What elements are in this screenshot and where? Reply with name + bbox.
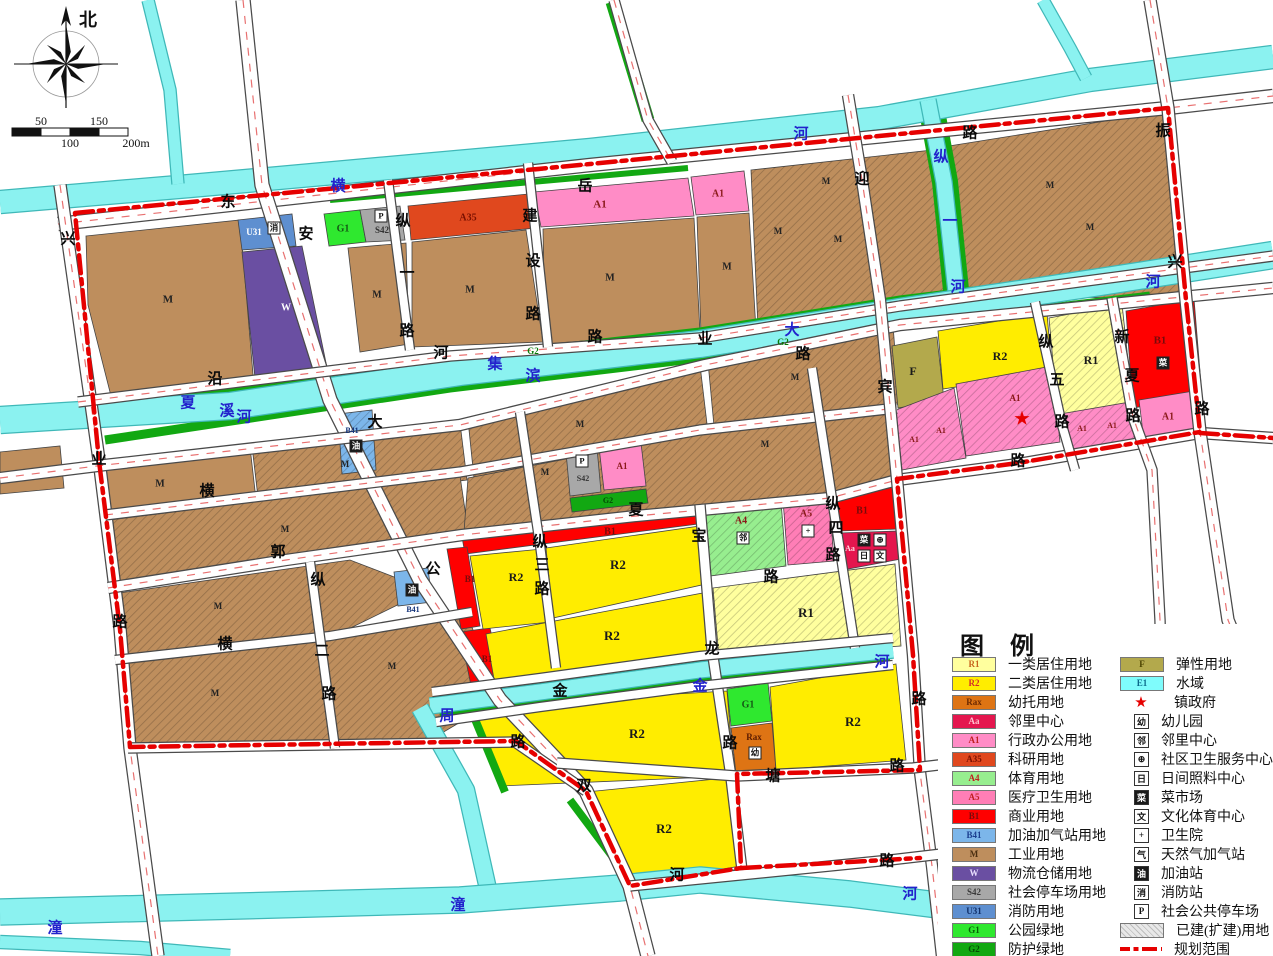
road-name-char: 路 (587, 327, 603, 345)
zone-label-A1: A1 (1107, 421, 1117, 430)
legend-swatch-W: W (952, 866, 996, 881)
legend-label: 弹性用地 (1176, 654, 1232, 674)
zone-label-G1: G1 (337, 223, 350, 234)
zone-label-Aa: Aa (845, 544, 855, 553)
legend-item-A4: A4体育用地 (952, 769, 1064, 787)
legend-item-Aa: Aa邻里中心 (952, 712, 1064, 730)
legend-label: 消防用地 (1008, 901, 1064, 921)
zone-label-M: M (605, 272, 615, 283)
zone-label-M: M (722, 261, 732, 272)
road-name-char: 路 (525, 304, 541, 322)
zone-label-A1: A1 (712, 188, 724, 199)
road-name-char: 岳 (577, 176, 592, 194)
river-name-char: 潼 (450, 895, 465, 913)
road-name-char: 路 (1010, 451, 1026, 469)
road-name-char: 纵 (825, 494, 840, 512)
zone-label-R2: R2 (629, 726, 645, 741)
facility-icon-菜: 菜 (1158, 357, 1168, 367)
zone-label-M: M (281, 524, 290, 534)
zone-label-A1: A1 (909, 435, 919, 444)
legend-swatch-Rax: Rax (952, 695, 996, 710)
road-name-char: 路 (1194, 399, 1210, 417)
road-name-char: 宝 (691, 526, 706, 544)
road-name-char: 迎 (854, 169, 869, 187)
legend-icon-社会公共停车场: P (1134, 904, 1149, 919)
road-name-char: 安 (298, 224, 313, 242)
zone-label-M: M (822, 176, 831, 186)
river-name-char: 集 (486, 354, 503, 372)
zone-label-M: M (341, 459, 350, 469)
legend-label: 消防站 (1161, 882, 1203, 902)
legend-item-规划范围: 规划范围 (1120, 940, 1230, 956)
facility-icon-菜: 菜 (859, 534, 869, 544)
river-name-char: 金 (691, 676, 708, 694)
legend-label: 菜市场 (1161, 787, 1203, 807)
legend-item-加油站: 油加油站 (1120, 864, 1203, 882)
road-name-char: 公 (425, 560, 440, 577)
road-name-char: 河 (433, 343, 448, 361)
river-name-char: 滨 (525, 366, 540, 384)
legend-swatch-A1: A1 (952, 733, 996, 748)
planning-boundary-dash-swatch (1120, 947, 1162, 951)
zone-label-M: M (761, 439, 770, 449)
road-name-char: 路 (763, 567, 779, 585)
river-name-char: 一 (942, 213, 957, 229)
zone-label-R2: R2 (845, 714, 861, 729)
legend-item-G2: G2防护绿地 (952, 940, 1064, 956)
legend-item-日间照料中心: 日日间照料中心 (1120, 769, 1245, 787)
zone-label-M: M (774, 226, 783, 236)
legend-item-卫生院: +卫生院 (1120, 826, 1203, 844)
facility-icon-P: P (579, 455, 584, 465)
road-name-char: 横 (199, 481, 215, 499)
zone-label-A1: A1 (1077, 424, 1087, 433)
m-block (412, 230, 543, 347)
zone-label-M: M (214, 601, 223, 611)
river-name-char: 大 (784, 320, 799, 338)
road-name-char: 业 (697, 330, 712, 347)
town-government-star-icon: ★ (1014, 409, 1030, 428)
road-name-char: 路 (911, 689, 927, 707)
legend-item-W: W物流仓储用地 (952, 864, 1092, 882)
legend-icon-社区卫生服务中心: ⊕ (1134, 752, 1149, 767)
legend-swatch-M: M (952, 847, 996, 862)
road-name-char: 建 (522, 206, 538, 224)
planning-map-stage: MU31WG1S42MMA35A1MA1MMMMMMMMMMB41MMMS42A… (0, 0, 1273, 956)
road-name-char: 路 (399, 321, 415, 339)
zone-label-M: M (1086, 222, 1095, 232)
legend-item-已建(扩建)用地: 已建(扩建)用地 (1120, 921, 1269, 939)
legend-label: 天然气加气站 (1161, 844, 1245, 864)
road-name-char: 路 (1054, 412, 1070, 430)
legend-item-E1: E1水域 (1120, 674, 1204, 692)
scale-label-50: 50 (35, 114, 47, 128)
legend-item-社区卫生服务中心: ⊕社区卫生服务中心 (1120, 750, 1273, 768)
road-name-char: 路 (722, 733, 738, 751)
zone-label-S42: S42 (375, 225, 390, 235)
road-name-char: 路 (825, 545, 841, 563)
legend-label: 社区卫生服务中心 (1161, 749, 1273, 769)
zone-label-B1: B1 (856, 505, 868, 516)
legend-icon-文化体育中心: 文 (1134, 809, 1149, 824)
legend-item-Rax: Rax幼托用地 (952, 693, 1064, 711)
road-name-char: 夏 (627, 501, 644, 518)
legend-item-S42: S42社会停车场用地 (952, 883, 1106, 901)
legend-item-A5: A5医疗卫生用地 (952, 788, 1092, 806)
zone-label-M: M (155, 478, 165, 489)
legend-label: 科研用地 (1008, 749, 1064, 769)
legend-item-消防站: 消消防站 (1120, 883, 1203, 901)
zone-label-U31: U31 (246, 227, 262, 237)
legend-item-R2: R2二类居住用地 (952, 674, 1092, 692)
scale-label-100: 100 (61, 136, 79, 150)
legend-label: 文化体育中心 (1161, 806, 1245, 826)
road-name-char: 设 (525, 252, 540, 269)
zone-label-G2: G2 (603, 496, 613, 505)
m-block (86, 220, 254, 400)
road-name-char: 龙 (703, 639, 719, 657)
legend-label: 镇政府 (1174, 692, 1216, 712)
zone-label-B1: B1 (482, 654, 493, 664)
legend-label: 日间照料中心 (1161, 768, 1245, 788)
legend-label: 加油站 (1161, 863, 1203, 883)
zone-label-M: M (541, 467, 550, 477)
zone-label-B41: B41 (345, 426, 358, 435)
legend-item-A35: A35科研用地 (952, 750, 1064, 768)
river-name-char: 横 (330, 176, 346, 194)
legend-item-G1: G1公园绿地 (952, 921, 1064, 939)
legend-item-R1: R1一类居住用地 (952, 655, 1092, 673)
legend-item-天然气加气站: 气天然气加气站 (1120, 845, 1245, 863)
zone-label-A1: A1 (617, 461, 628, 471)
legend-label: 已建(扩建)用地 (1176, 920, 1269, 940)
zone-label-R2: R2 (509, 570, 524, 584)
facility-icon-油: 油 (408, 584, 417, 594)
road-name-char: 四 (828, 520, 843, 536)
legend-label: 规划范围 (1174, 939, 1230, 956)
legend-label: 物流仓储用地 (1008, 863, 1092, 883)
legend-item-F: F弹性用地 (1120, 655, 1232, 673)
legend-label: 幼托用地 (1008, 692, 1064, 712)
legend-label: 一类居住用地 (1008, 654, 1092, 674)
facility-icon-+: + (806, 525, 811, 535)
legend-icon-消防站: 消 (1134, 885, 1149, 900)
legend-label: 水域 (1176, 673, 1204, 693)
zone-label-R2: R2 (993, 349, 1008, 363)
zone-label-M: M (211, 688, 220, 698)
river-name-char: 纵 (933, 147, 948, 165)
legend-label: 邻里中心 (1008, 711, 1064, 731)
road-name-char: 路 (795, 344, 811, 362)
legend-label: 体育用地 (1008, 768, 1064, 788)
road-name-char: 夏 (1123, 367, 1140, 384)
road-name-char: 沿 (207, 370, 222, 387)
legend-label: 公园绿地 (1008, 920, 1064, 940)
legend-item-邻里中心: 邻邻里中心 (1120, 731, 1217, 749)
road-name-char: 路 (534, 579, 550, 597)
facility-icon-邻: 邻 (739, 532, 748, 542)
road-name-char: 大 (367, 412, 382, 430)
zone-label-B1: B1 (465, 574, 476, 584)
zone-label-M: M (465, 284, 475, 295)
road-name-char: 三 (534, 557, 549, 573)
road-name-char: 五 (1049, 372, 1064, 388)
legend-swatch-A5: A5 (952, 790, 996, 805)
river-name-char: 河 (793, 124, 808, 142)
road-name-char: 二 (314, 643, 329, 659)
legend-item-社会公共停车场: P社会公共停车场 (1120, 902, 1259, 920)
road-name-char: 金 (551, 681, 568, 699)
legend-panel: 图 例 R1一类居住用地R2二类居住用地Rax幼托用地Aa邻里中心A1行政办公用… (938, 624, 1273, 956)
legend-label: 医疗卫生用地 (1008, 787, 1092, 807)
road-name-char: 纵 (310, 570, 325, 588)
m-block (543, 218, 700, 344)
legend-label: 社会停车场用地 (1008, 882, 1106, 902)
legend-item-B41: B41加油加气站用地 (952, 826, 1106, 844)
road-name-char: 路 (321, 684, 337, 702)
legend-item-U31: U31消防用地 (952, 902, 1064, 920)
legend-label: 工业用地 (1008, 844, 1064, 864)
zone-label-S42: S42 (577, 474, 589, 483)
zone-label-Rax: Rax (746, 732, 762, 742)
zone-label-A4: A4 (735, 515, 747, 526)
legend-icon-卫生院: + (1134, 828, 1149, 843)
zone-label-F: F (909, 364, 916, 378)
river-name-char: 河 (902, 884, 917, 902)
legend-label: 商业用地 (1008, 806, 1064, 826)
legend-swatch-R1: R1 (952, 657, 996, 672)
scale-label-200m: 200m (122, 136, 150, 150)
legend-swatch-S42: S42 (952, 885, 996, 900)
river-name-char: 河 (874, 652, 889, 670)
zone-label-A1: A1 (593, 199, 606, 211)
road-name-char: 双 (576, 777, 591, 794)
legend-swatch-F: F (1120, 657, 1164, 672)
river-name-char: 周 (439, 707, 454, 724)
zone-label-R2: R2 (604, 628, 620, 643)
legend-label: 加油加气站用地 (1008, 825, 1106, 845)
legend-label: 幼儿园 (1161, 711, 1203, 731)
river-name-char: 夏 (179, 394, 196, 411)
river-name-char: 河 (950, 277, 965, 295)
legend-icon-日间照料中心: 日 (1134, 771, 1149, 786)
zone-label-A5: A5 (800, 508, 812, 519)
green-name-char: G2 (527, 346, 539, 356)
zone-label-B1: B1 (1154, 335, 1167, 347)
road-name-char: 新 (1114, 327, 1129, 345)
zone-label-M: M (163, 294, 174, 306)
river-name-char: 河 (1145, 272, 1160, 290)
zone-label-M: M (372, 289, 382, 300)
facility-icon-日: 日 (860, 550, 869, 560)
zone-label-A1: A1 (1162, 411, 1174, 422)
zone-label-B41: B41 (406, 605, 419, 614)
legend-swatch-G1: G1 (952, 923, 996, 938)
facility-icon-文: 文 (876, 550, 885, 560)
road-name-char: 振 (1155, 121, 1170, 139)
road-name-char: 纵 (1038, 332, 1053, 350)
legend-item-文化体育中心: 文文化体育中心 (1120, 807, 1245, 825)
legend-item-镇政府: ★镇政府 (1120, 693, 1216, 711)
road-name-char: 纵 (395, 211, 410, 229)
legend-item-幼儿园: 幼幼儿园 (1120, 712, 1203, 730)
facility-icon-⊕: ⊕ (876, 534, 883, 544)
zone-label-W: W (281, 302, 291, 313)
legend-swatch-Aa: Aa (952, 714, 996, 729)
zone-label-M: M (1046, 180, 1055, 190)
zone-label-G1: G1 (742, 699, 755, 710)
road-name-char: 纵 (532, 532, 547, 550)
road-name-char: 东 (220, 192, 235, 210)
facility-icon-消: 消 (270, 222, 279, 232)
legend-swatch-G2: G2 (952, 942, 996, 956)
legend-icon-邻里中心: 邻 (1134, 733, 1149, 748)
zone-label-A35: A35 (459, 212, 476, 223)
legend-icon-菜市场: 菜 (1134, 790, 1149, 805)
legend-item-B1: B1商业用地 (952, 807, 1064, 825)
road-name-char: 路 (962, 123, 978, 141)
river-name-char: 溪 (219, 401, 235, 419)
facility-icon-P: P (378, 210, 383, 220)
river-name-char: 潼 (47, 918, 62, 936)
zone-label-M: M (388, 661, 397, 671)
zone-label-A1: A1 (1010, 393, 1021, 403)
legend-item-M: M工业用地 (952, 845, 1064, 863)
road-name-char: 路 (879, 851, 895, 869)
zone-label-A1: A1 (936, 426, 946, 435)
facility-icon-幼: 幼 (751, 747, 760, 757)
north-label: 北 (79, 10, 97, 30)
legend-item-A1: A1行政办公用地 (952, 731, 1092, 749)
legend-item-菜市场: 菜菜市场 (1120, 788, 1203, 806)
scale-label-150: 150 (90, 114, 108, 128)
zone-label-M: M (834, 234, 843, 244)
road-name-char: 路 (1125, 406, 1141, 424)
zone-label-R2: R2 (610, 557, 626, 572)
zone-label-R1: R1 (1084, 353, 1099, 367)
legend-swatch-B1: B1 (952, 809, 996, 824)
legend-label: 行政办公用地 (1008, 730, 1092, 750)
legend-swatch-R2: R2 (952, 676, 996, 691)
legend-swatch-A35: A35 (952, 752, 996, 767)
legend-label: 邻里中心 (1161, 730, 1217, 750)
road-name-char: 兴 (60, 230, 75, 247)
legend-icon-加油站: 油 (1134, 866, 1149, 881)
road-name-char: 路 (889, 756, 905, 774)
legend-icon-天然气加气站: 气 (1134, 847, 1149, 862)
legend-swatch-U31: U31 (952, 904, 996, 919)
zone-label-M: M (791, 372, 800, 382)
road-name-char: 路 (510, 732, 526, 750)
legend-label: 防护绿地 (1008, 939, 1064, 956)
road-name-char: 横 (217, 634, 233, 652)
road-name-char: 业 (91, 450, 106, 467)
legend-icon-幼儿园: 幼 (1134, 714, 1149, 729)
facility-icon-油: 油 (352, 440, 361, 450)
zone-label-R1: R1 (798, 605, 814, 620)
zone-label-B1: B1 (604, 526, 616, 537)
legend-swatch-E1: E1 (1120, 676, 1164, 691)
legend-swatch-A4: A4 (952, 771, 996, 786)
built-area-hatch-swatch (1120, 923, 1164, 938)
zone-label-M: M (576, 419, 585, 429)
road-name-char: 郭 (270, 542, 285, 560)
road-name-char: 兴 (1167, 253, 1182, 270)
green-name-char: G2 (777, 337, 789, 347)
legend-swatch-B41: B41 (952, 828, 996, 843)
road-name-char: 宾 (877, 377, 892, 395)
road-name-char: 塘 (765, 766, 780, 784)
legend-label: 社会公共停车场 (1161, 901, 1259, 921)
zone-label-R2: R2 (656, 821, 672, 836)
road-name-char: 一 (399, 265, 414, 281)
town-government-star-icon: ★ (1120, 693, 1162, 712)
road-name-char: 路 (112, 612, 128, 630)
legend-label: 卫生院 (1161, 825, 1203, 845)
road-name-char: 河 (669, 865, 684, 883)
m-block (697, 213, 756, 334)
legend-label: 二类居住用地 (1008, 673, 1092, 693)
river-name-char: 河 (236, 407, 251, 425)
